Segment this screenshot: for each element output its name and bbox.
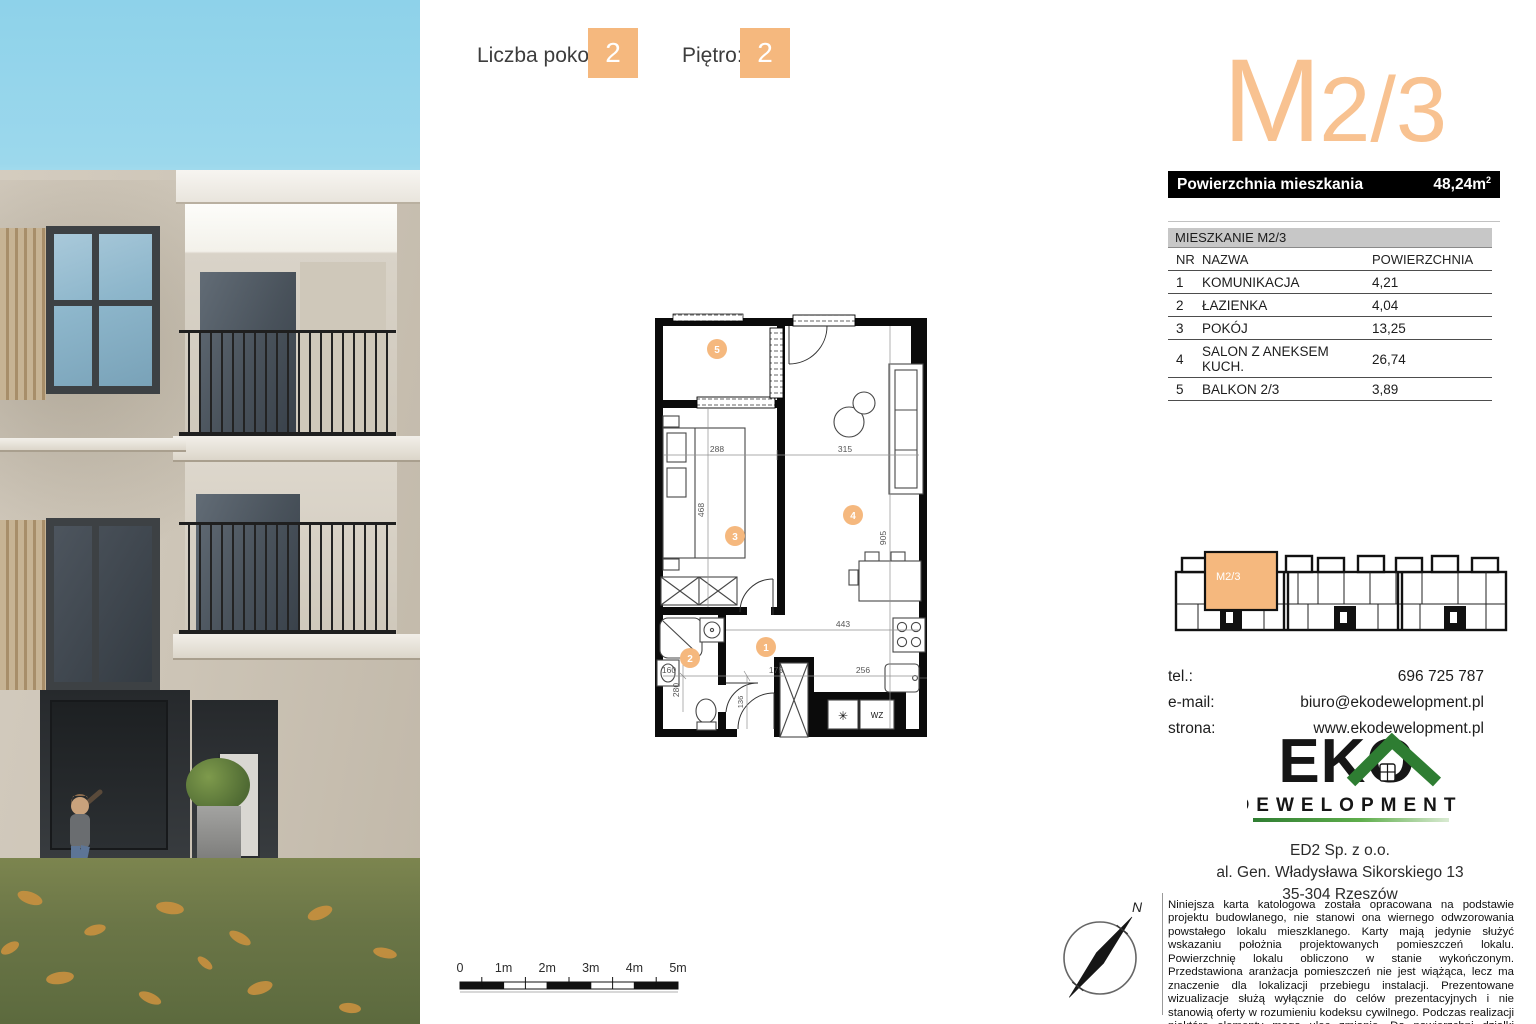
svg-text:3m: 3m: [582, 961, 599, 975]
table-row: 4SALON Z ANEKSEM KUCH.26,74: [1168, 340, 1492, 378]
svg-text:5m: 5m: [669, 961, 686, 975]
building-render-photo: [0, 0, 420, 1024]
room-table-title: MIESZKANIE M2/3: [1168, 228, 1492, 248]
plan-furniture: [657, 364, 927, 737]
disclaimer-text: Niniejsza karta katologowa została oprac…: [1168, 899, 1514, 1024]
svg-text:3: 3: [732, 532, 738, 543]
window-frame-mid: [46, 518, 160, 690]
logo-underline: [1253, 818, 1449, 822]
table-row: 5BALKON 2/33,89: [1168, 378, 1492, 401]
svg-text:0: 0: [457, 961, 464, 975]
logo-subword: DEWELOPMENT: [1247, 795, 1462, 816]
rooms-count-label: Liczba pokoi:: [477, 44, 600, 68]
contact-row-phone: tel.:696 725 787: [1168, 664, 1484, 690]
scale-bar: 0 1m 2m 3m 4m 5m: [452, 954, 696, 1006]
table-row: 1KOMUNIKACJA4,21: [1168, 271, 1492, 294]
balcony-slab-mid: [173, 634, 420, 660]
floor-plan: ✳ WZ 288 315 468 905 443 160 175 256 280…: [643, 312, 943, 748]
svg-text:443: 443: [836, 619, 850, 629]
company-address: ED2 Sp. z o.o. al. Gen. Władysława Sikor…: [1165, 840, 1515, 906]
table-row: 3POKÓJ13,25: [1168, 317, 1492, 340]
svg-text:280: 280: [671, 683, 681, 697]
svg-text:468: 468: [696, 503, 706, 517]
fallen-leaves: [0, 858, 420, 1024]
area-bar-value: 48,24m2: [1433, 175, 1491, 194]
floor-band-left: [0, 438, 186, 452]
balcony-railing-mid: [179, 522, 396, 634]
svg-text:2m: 2m: [539, 961, 556, 975]
highlighted-unit-label: M2/3: [1216, 571, 1240, 583]
balcony-railing-top: [179, 330, 396, 436]
window-frame-top: [46, 226, 160, 394]
boiler-symbol: ✳: [838, 709, 848, 723]
wz-label: WZ: [871, 711, 884, 720]
svg-text:315: 315: [838, 444, 852, 454]
divider-rule: [1168, 221, 1500, 222]
floor-label: Piętro:: [682, 44, 743, 68]
planter: [197, 806, 241, 862]
room-table: MIESZKANIE M2/3 NR NAZWA POWIERZCHNIA 1K…: [1168, 228, 1492, 401]
col-nr: NR: [1168, 248, 1202, 271]
area-bar: Powierzchnia mieszkania 48,24m2: [1168, 171, 1500, 198]
svg-text:5: 5: [714, 345, 720, 356]
col-powierzchnia: POWIERZCHNIA: [1372, 248, 1492, 271]
svg-text:288: 288: [710, 444, 724, 454]
svg-text:905: 905: [878, 531, 888, 545]
svg-text:4: 4: [850, 511, 856, 522]
balcony-slab-top: [173, 436, 420, 462]
svg-text:1: 1: [763, 643, 769, 654]
svg-text:160: 160: [662, 665, 676, 675]
roof-parapet: [176, 170, 420, 204]
svg-text:1m: 1m: [495, 961, 512, 975]
disclaimer-divider: [1162, 893, 1163, 1015]
rooms-count-value: 2: [588, 28, 638, 78]
building-overview-plan: M2/3: [1168, 546, 1516, 638]
eko-dewelopment-logo: EKO DEWELOPMENT: [1247, 728, 1467, 828]
contact-row-email: e-mail:biuro@ekodewelopment.pl: [1168, 690, 1484, 716]
svg-text:175: 175: [769, 665, 783, 675]
wood-slats-mid: [0, 520, 46, 690]
unit-title-suffix: 2/3: [1319, 59, 1447, 161]
svg-text:4m: 4m: [626, 961, 643, 975]
compass-icon: N: [1056, 890, 1156, 1018]
compass-north-label: N: [1132, 899, 1143, 915]
unit-title: M2/3: [1155, 42, 1515, 160]
area-bar-label: Powierzchnia mieszkania: [1177, 176, 1363, 194]
svg-text:256: 256: [856, 665, 870, 675]
table-row: 2ŁAZIENKA4,04: [1168, 294, 1492, 317]
svg-text:2: 2: [687, 654, 693, 665]
col-nazwa: NAZWA: [1202, 248, 1372, 271]
apartment-card-page: Liczba pokoi: 2 Piętro: 2: [0, 0, 1536, 1024]
svg-text:136: 136: [736, 696, 745, 709]
wood-slats-top: [0, 228, 46, 400]
plan-windows: [673, 314, 855, 408]
unit-title-prefix: M: [1223, 35, 1319, 167]
shrub: [186, 758, 250, 812]
floor-value: 2: [740, 28, 790, 78]
